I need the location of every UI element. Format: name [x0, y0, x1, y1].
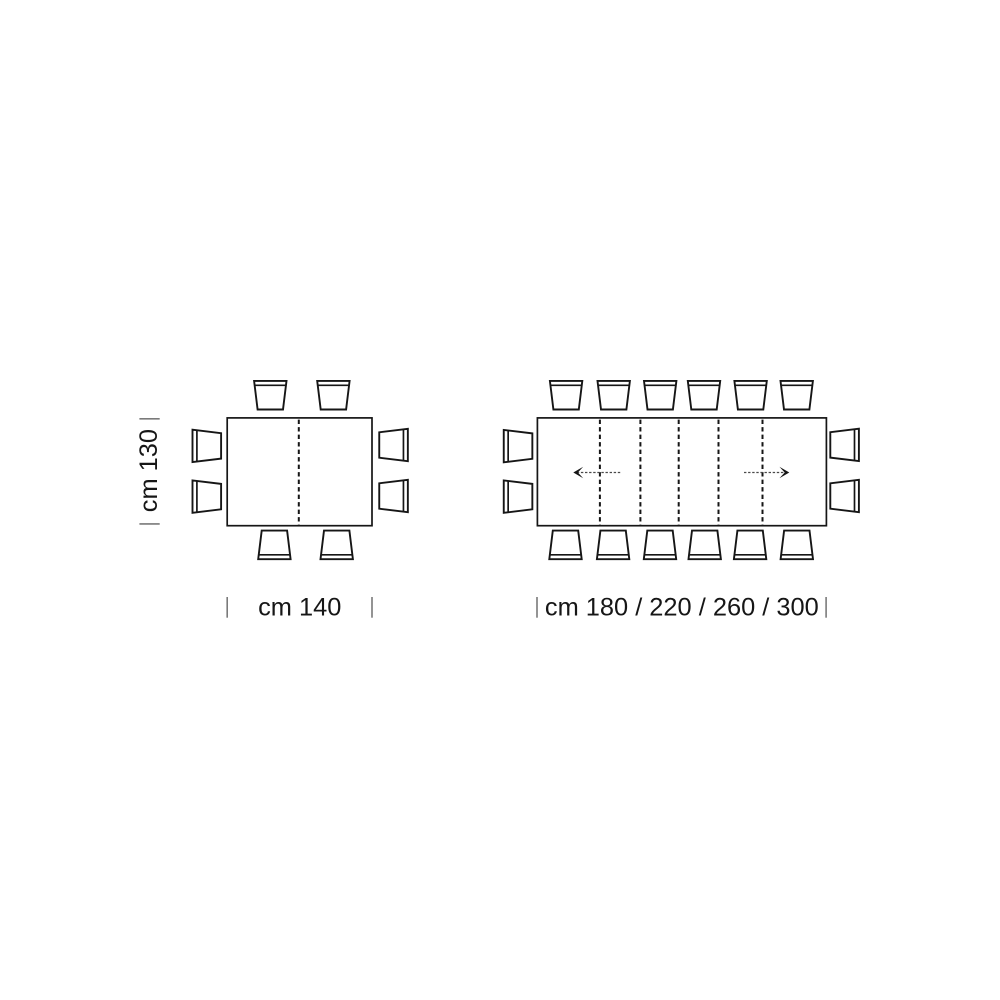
svg-text:cm 180 / 220 / 260 / 300: cm 180 / 220 / 260 / 300 — [545, 593, 819, 621]
svg-text:cm 140: cm 140 — [258, 593, 341, 621]
svg-text:cm 130: cm 130 — [135, 429, 163, 512]
